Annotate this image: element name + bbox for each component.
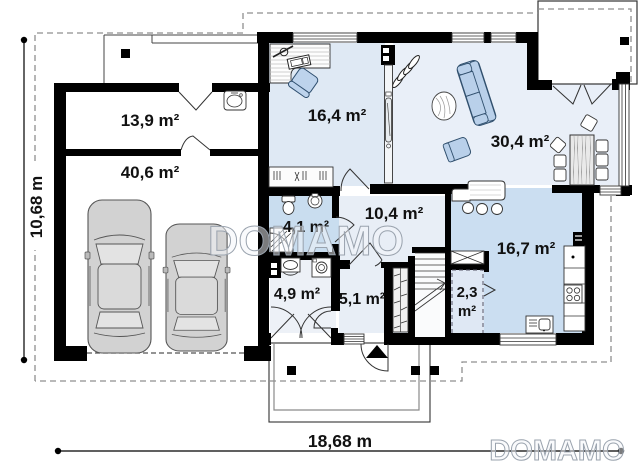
svg-text:30,4 m²: 30,4 m² xyxy=(491,132,550,151)
svg-text:40,6 m²: 40,6 m² xyxy=(121,163,180,182)
svg-text:18,68 m: 18,68 m xyxy=(308,431,372,451)
svg-text:2,3: 2,3 xyxy=(457,284,478,301)
svg-text:16,7 m²: 16,7 m² xyxy=(497,239,556,258)
svg-text:13,9 m²: 13,9 m² xyxy=(121,111,180,130)
svg-text:DOMAMO: DOMAMO xyxy=(489,435,624,466)
svg-text:10,68 m: 10,68 m xyxy=(27,176,46,238)
svg-text:16,4 m²: 16,4 m² xyxy=(308,106,367,125)
svg-text:DOMAMO: DOMAMO xyxy=(208,217,404,264)
svg-text:5,1 m²: 5,1 m² xyxy=(339,291,385,308)
svg-text:m²: m² xyxy=(458,303,476,320)
svg-text:4,9 m²: 4,9 m² xyxy=(274,286,320,303)
